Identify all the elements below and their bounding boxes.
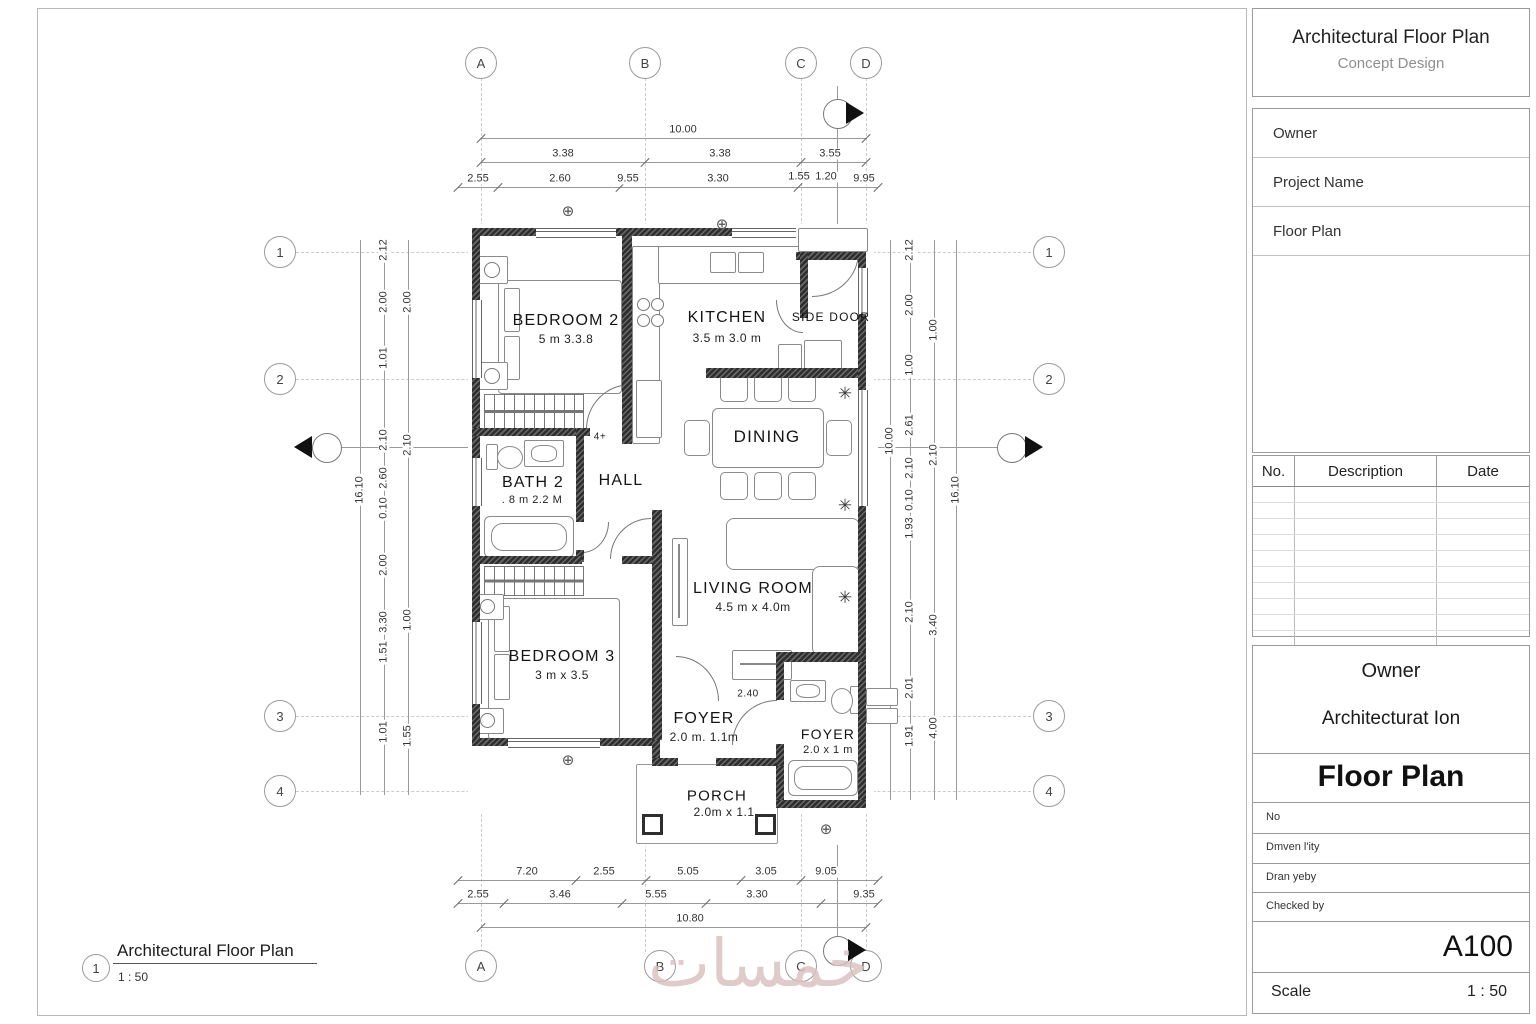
dim-text: 3.38	[550, 149, 575, 160]
toilet-bowl	[497, 446, 523, 469]
wall	[782, 652, 866, 662]
dim-line	[408, 240, 409, 795]
dim-text: 2.55	[465, 174, 490, 185]
grid-bubble-3-right: 3	[1033, 700, 1065, 732]
dim-text: 5.55	[643, 890, 668, 901]
grid-label: 1	[1045, 245, 1052, 260]
revision-row	[1253, 567, 1529, 583]
grid-label: 1	[276, 245, 283, 260]
dim-text: 9.35	[851, 890, 876, 901]
room-label-kitchen: KITCHEN	[688, 309, 767, 327]
dim-text: 7.20	[514, 867, 539, 878]
chair	[788, 472, 816, 500]
field-project-name: Project Name	[1253, 158, 1529, 207]
section-line	[837, 845, 838, 936]
revision-col-date: Date	[1437, 456, 1529, 486]
titleblock-header: Architectural Floor Plan Concept Design	[1252, 8, 1530, 97]
dim-text: 2.60	[547, 174, 572, 185]
dim-text: 1.51	[379, 639, 390, 664]
revision-row	[1253, 503, 1529, 519]
dim-text: 1.91	[905, 723, 916, 748]
bathtub-basin	[794, 766, 852, 790]
wardrobe	[484, 394, 584, 429]
dim-line	[360, 240, 361, 795]
room-size: 3 m x 3.5	[535, 668, 589, 682]
titleblock-stamp: Owner Architecturat Ion Floor Plan No Dm…	[1252, 645, 1530, 1014]
room-label-side-door: SIDE DOOR	[792, 310, 870, 324]
dim-text: 3.05	[753, 867, 778, 878]
wall	[716, 758, 784, 766]
wall	[622, 228, 632, 444]
revision-row	[1253, 519, 1529, 535]
dim-text: 9.95	[851, 174, 876, 185]
radiator-line	[678, 544, 680, 618]
dim-text: 1.55	[786, 172, 811, 183]
grid-bubble-d-top: D	[850, 47, 882, 79]
lamp	[484, 262, 500, 278]
lamp	[484, 368, 500, 384]
view-title: Architectural Floor Plan	[117, 941, 294, 961]
wardrobe	[484, 566, 584, 596]
dim-text: 3.46	[547, 890, 572, 901]
door-tag: 4+	[594, 432, 606, 443]
stamp-scale-value: 1 : 50	[1467, 983, 1507, 1001]
dim-text: 2.10	[929, 442, 940, 467]
view-scale: 1 : 50	[118, 970, 148, 984]
room-size: 4.5 m x 4.0m	[715, 600, 790, 614]
dim-text: 2.10	[379, 427, 390, 452]
dim-line	[458, 903, 878, 904]
revision-row	[1253, 583, 1529, 599]
wall	[472, 428, 576, 436]
wall	[576, 428, 584, 522]
section-marker-right-icon	[997, 433, 1027, 463]
ledge	[798, 228, 868, 252]
dim-text: 0.10	[379, 495, 390, 520]
dim-text: 3.30	[744, 890, 769, 901]
watermark: خمسات	[648, 925, 868, 1002]
grid-label: 2	[276, 372, 283, 387]
revision-rows	[1253, 487, 1529, 647]
stove-burner	[637, 298, 650, 311]
centerline-icon: ⊕	[820, 820, 833, 838]
window	[858, 390, 868, 506]
centerline-icon: ⊕	[562, 202, 575, 220]
lamp	[480, 599, 495, 614]
stamp-client: Owner	[1253, 660, 1529, 683]
window	[508, 738, 600, 748]
dim-text: 2.12	[905, 237, 916, 262]
stamp-row3: Checked by	[1266, 900, 1324, 912]
grid-label: C	[796, 56, 805, 71]
grid-label: D	[861, 56, 870, 71]
room-size: 2.0 m. 1.1m	[670, 730, 739, 744]
window	[732, 228, 796, 238]
wall	[800, 252, 808, 318]
revision-row	[1253, 487, 1529, 503]
dim-text: 10.00	[667, 125, 699, 136]
wall	[858, 252, 866, 808]
dim-text: 0.10	[905, 487, 916, 512]
dim-text: 2.10	[905, 599, 916, 624]
plant-icon: ✳	[838, 496, 852, 516]
revision-row	[1253, 535, 1529, 551]
grid-bubble-3-left: 3	[264, 700, 296, 732]
stamp-sheet-number: A100	[1443, 930, 1513, 964]
grid-bubble-a-bottom: A	[465, 950, 497, 982]
radiator	[672, 538, 688, 626]
wall	[776, 800, 866, 808]
stamp-project: Architecturat Ion	[1253, 708, 1529, 730]
grid-bubble-2-left: 2	[264, 363, 296, 395]
room-size: 2.0m x 1.1	[693, 805, 754, 819]
dim-text: 2.60	[379, 465, 390, 490]
section-arrow-top-icon	[846, 102, 864, 124]
room-size: 2.0 x 1 m	[803, 744, 853, 756]
stamp-divider	[1253, 833, 1529, 834]
dim-text: 2.00	[905, 292, 916, 317]
wall	[776, 744, 784, 766]
sink-basin	[531, 445, 557, 462]
grid-bubble-c-top: C	[785, 47, 817, 79]
grid-label: 3	[1045, 709, 1052, 724]
centerline-icon: ⊕	[716, 215, 729, 233]
grid-bubble-4-right: 4	[1033, 775, 1065, 807]
dim-text: 2.55	[591, 867, 616, 878]
kitchen-cabinet	[636, 380, 662, 438]
grid-bubble-2-right: 2	[1033, 363, 1065, 395]
ac-unit	[866, 688, 898, 706]
dim-text: 1.01	[379, 345, 390, 370]
window	[858, 268, 868, 314]
dim-line	[956, 240, 957, 800]
chair	[754, 472, 782, 500]
sheet-subtitle: Concept Design	[1253, 55, 1529, 72]
porch-column	[755, 814, 776, 835]
stamp-divider	[1253, 921, 1529, 922]
stamp-scale-label: Scale	[1271, 983, 1311, 1001]
room-size: 3.5 m 3.0 m	[693, 331, 762, 345]
revision-row	[1253, 551, 1529, 567]
stamp-divider	[1253, 972, 1529, 973]
grid-label: 4	[1045, 784, 1052, 799]
room-label-foyer1: FOYER	[673, 710, 734, 728]
dim-text: 2.55	[465, 890, 490, 901]
dim-text: 5.05	[675, 867, 700, 878]
room-label-bath2: BATH 2	[502, 474, 564, 492]
chair	[826, 420, 852, 456]
dim-text: 1.20	[813, 172, 838, 183]
room-label-living: LIVING ROOM	[693, 580, 813, 598]
porch-column	[642, 814, 663, 835]
grid-bubble-b-top: B	[629, 47, 661, 79]
grid-label: B	[641, 56, 650, 71]
chair	[720, 472, 748, 500]
stamp-divider	[1253, 753, 1529, 754]
section-arrow-right-icon	[1025, 436, 1043, 458]
sofa	[812, 566, 860, 656]
wall	[652, 510, 662, 740]
wall	[652, 758, 678, 766]
dim-line	[481, 162, 866, 163]
inline-dim: 2.40	[737, 689, 758, 700]
field-floor-plan: Floor Plan	[1253, 207, 1529, 256]
section-arrow-left-icon	[294, 436, 312, 458]
room-size: . 8 m 2.2 M	[502, 494, 563, 506]
dim-text: 10.80	[674, 914, 706, 925]
dim-text: 16.10	[951, 474, 962, 506]
view-number-bubble: 1	[82, 954, 110, 982]
dim-text: 1.00	[403, 607, 414, 632]
dim-text: 10.00	[885, 425, 896, 457]
stamp-divider	[1253, 863, 1529, 864]
plant-icon: ✳	[838, 384, 852, 404]
dim-text: 9.05	[813, 867, 838, 878]
window	[472, 458, 482, 506]
stamp-divider	[1253, 892, 1529, 893]
chair	[754, 374, 782, 402]
dim-text: 2.01	[905, 675, 916, 700]
plant-icon: ✳	[838, 588, 852, 608]
revision-col-no: No.	[1253, 456, 1295, 486]
stove-burner	[637, 314, 650, 327]
kitchen-sink	[710, 252, 736, 273]
field-owner: Owner	[1253, 109, 1529, 158]
grid-bubble-4-left: 4	[264, 775, 296, 807]
window	[472, 300, 482, 378]
room-label-porch: PORCH	[687, 788, 747, 805]
stamp-sheet-name: Floor Plan	[1253, 760, 1529, 794]
dim-text: 9.55	[615, 174, 640, 185]
stove-burner	[651, 298, 664, 311]
section-marker-left-icon	[312, 433, 342, 463]
lamp	[480, 713, 495, 728]
sheet-title: Architectural Floor Plan	[1253, 27, 1529, 49]
dim-text: 3.30	[379, 609, 390, 634]
sheet: A B C D A B C D 1 2 3 4 1 2 3 4 10.00 3.…	[0, 0, 1536, 1024]
grid-label: 3	[276, 709, 283, 724]
revision-table: No. Description Date	[1252, 455, 1530, 637]
grid-bubble-a-top: A	[465, 47, 497, 79]
kitchen-sink	[738, 252, 764, 273]
stamp-row2: Dran yeby	[1266, 871, 1316, 883]
dim-text: 2.00	[379, 552, 390, 577]
window	[472, 622, 482, 704]
ac-unit	[866, 708, 898, 724]
stamp-row1: Dmven l'ity	[1266, 841, 1319, 853]
view-title-underline	[113, 963, 317, 964]
dim-text: 2.10	[905, 455, 916, 480]
room-label-foyer2: FOYER	[801, 726, 855, 742]
grid-label: A	[477, 959, 486, 974]
wall	[706, 368, 858, 378]
grid-label: A	[477, 56, 486, 71]
stamp-divider	[1253, 802, 1529, 803]
dim-text: 2.00	[379, 289, 390, 314]
window	[536, 228, 616, 238]
grid-label: 4	[276, 784, 283, 799]
dim-text: 1.01	[379, 719, 390, 744]
dim-text: 1.00	[905, 352, 916, 377]
sink-basin	[796, 684, 820, 698]
wall	[472, 228, 536, 236]
revision-header: No. Description Date	[1253, 456, 1529, 487]
dim-text: 1.93	[905, 515, 916, 540]
dim-text: 2.12	[379, 237, 390, 262]
dim-text: 16.10	[355, 474, 366, 506]
dim-text: 2.10	[403, 432, 414, 457]
dim-text: 1.55	[403, 723, 414, 748]
room-label-dining: DINING	[734, 427, 801, 447]
grid-label: 2	[1045, 372, 1052, 387]
room-size: 5 m 3.3.8	[539, 332, 594, 346]
chair	[788, 374, 816, 402]
view-number: 1	[92, 961, 99, 976]
room-label-hall: HALL	[599, 472, 644, 490]
dim-text: 1.00	[929, 317, 940, 342]
stove-burner	[651, 314, 664, 327]
toilet-bowl	[831, 688, 853, 714]
centerline-icon: ⊕	[562, 751, 575, 769]
dim-text: 3.30	[705, 174, 730, 185]
dim-text: 2.00	[403, 289, 414, 314]
dim-text: 3.40	[929, 612, 940, 637]
dim-line	[458, 880, 878, 881]
room-label-bedroom2: BEDROOM 2	[513, 312, 620, 330]
wall	[472, 556, 582, 564]
revision-row	[1253, 599, 1529, 615]
dim-text: 3.38	[707, 149, 732, 160]
dim-text: 2.61	[905, 412, 916, 437]
bathtub-basin	[491, 523, 567, 551]
dim-line	[458, 187, 878, 188]
grid-bubble-1-left: 1	[264, 236, 296, 268]
sofa	[726, 518, 860, 570]
stamp-no: No	[1266, 811, 1280, 823]
revision-row	[1253, 615, 1529, 631]
revision-col-description: Description	[1295, 456, 1437, 486]
grid-bubble-1-right: 1	[1033, 236, 1065, 268]
chair	[720, 374, 748, 402]
wall	[616, 228, 732, 236]
chair	[684, 420, 710, 456]
wall	[776, 652, 784, 700]
titleblock-fields: Owner Project Name Floor Plan	[1252, 108, 1530, 453]
room-label-bedroom3: BEDROOM 3	[509, 648, 616, 666]
dim-text: 3.55	[817, 149, 842, 160]
dim-line	[481, 138, 866, 139]
dim-text: 4.00	[929, 715, 940, 740]
